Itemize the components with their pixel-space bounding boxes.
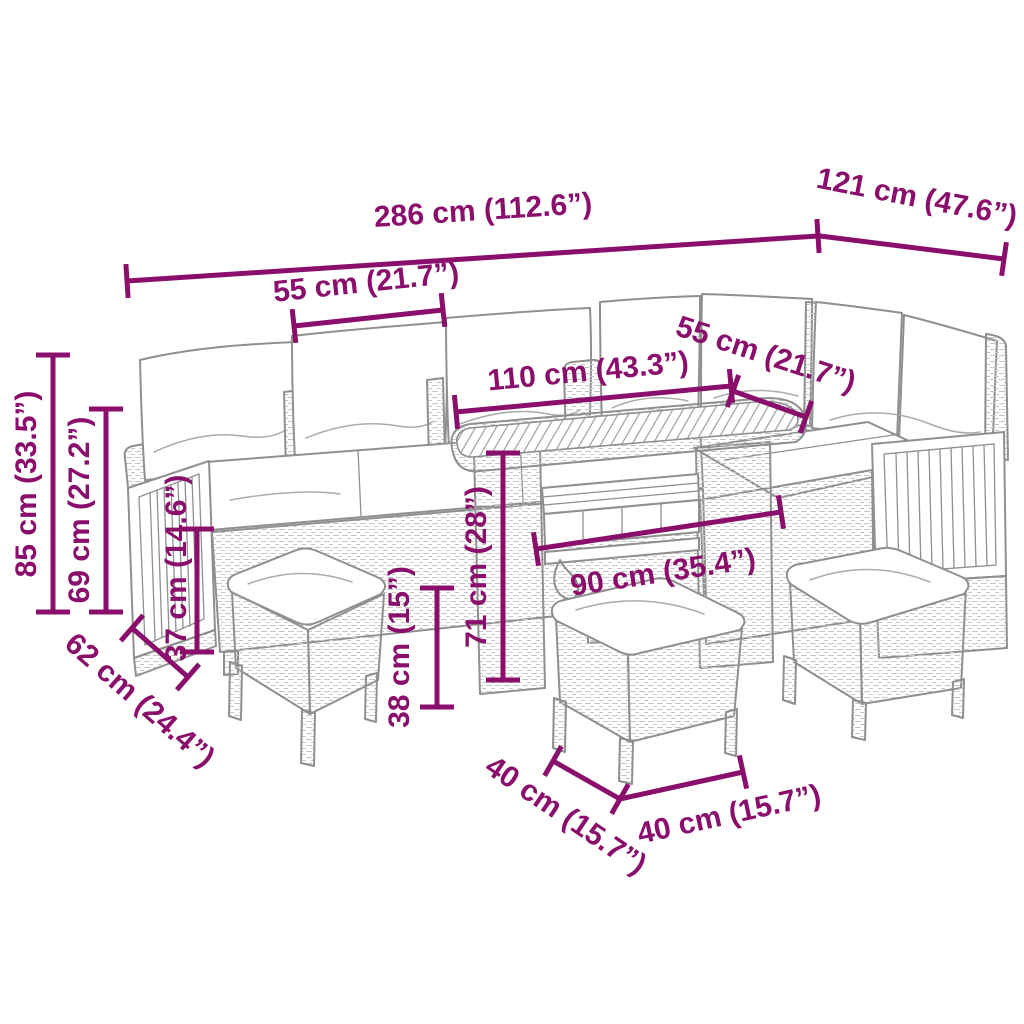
diagram-canvas: 286 cm (112.6”) 121 cm (47.6”) 55 cm (21… <box>0 0 1024 1024</box>
dim-back-height-label: 85 cm (33.5”) <box>10 391 43 578</box>
dim-back-height: 85 cm (33.5”) <box>10 355 70 612</box>
stool-left <box>228 549 385 767</box>
dim-total-width: 286 cm (112.6”) <box>126 187 819 298</box>
dim-arm-height-label: 69 cm (27.2”) <box>63 417 96 604</box>
stool-middle <box>552 578 745 784</box>
dim-stool-width: 40 cm (15.7”) <box>620 755 824 850</box>
furniture-dimension-diagram: 286 cm (112.6”) 121 cm (47.6”) 55 cm (21… <box>0 0 1024 1024</box>
dim-total-depth-label: 121 cm (47.6”) <box>814 162 1020 233</box>
dim-total-width-label: 286 cm (112.6”) <box>373 187 593 234</box>
dim-seat-height-label: 37 cm (14.6”) <box>160 475 193 662</box>
dim-stool-height-label: 38 cm (15”) <box>383 566 416 728</box>
back-pillow-2 <box>292 322 447 462</box>
dim-table-height-label: 71 cm (28”) <box>460 486 493 648</box>
dim-total-depth: 121 cm (47.6”) <box>814 162 1020 276</box>
stool-right <box>783 548 968 740</box>
dim-arm-height: 69 cm (27.2”) <box>63 409 123 612</box>
